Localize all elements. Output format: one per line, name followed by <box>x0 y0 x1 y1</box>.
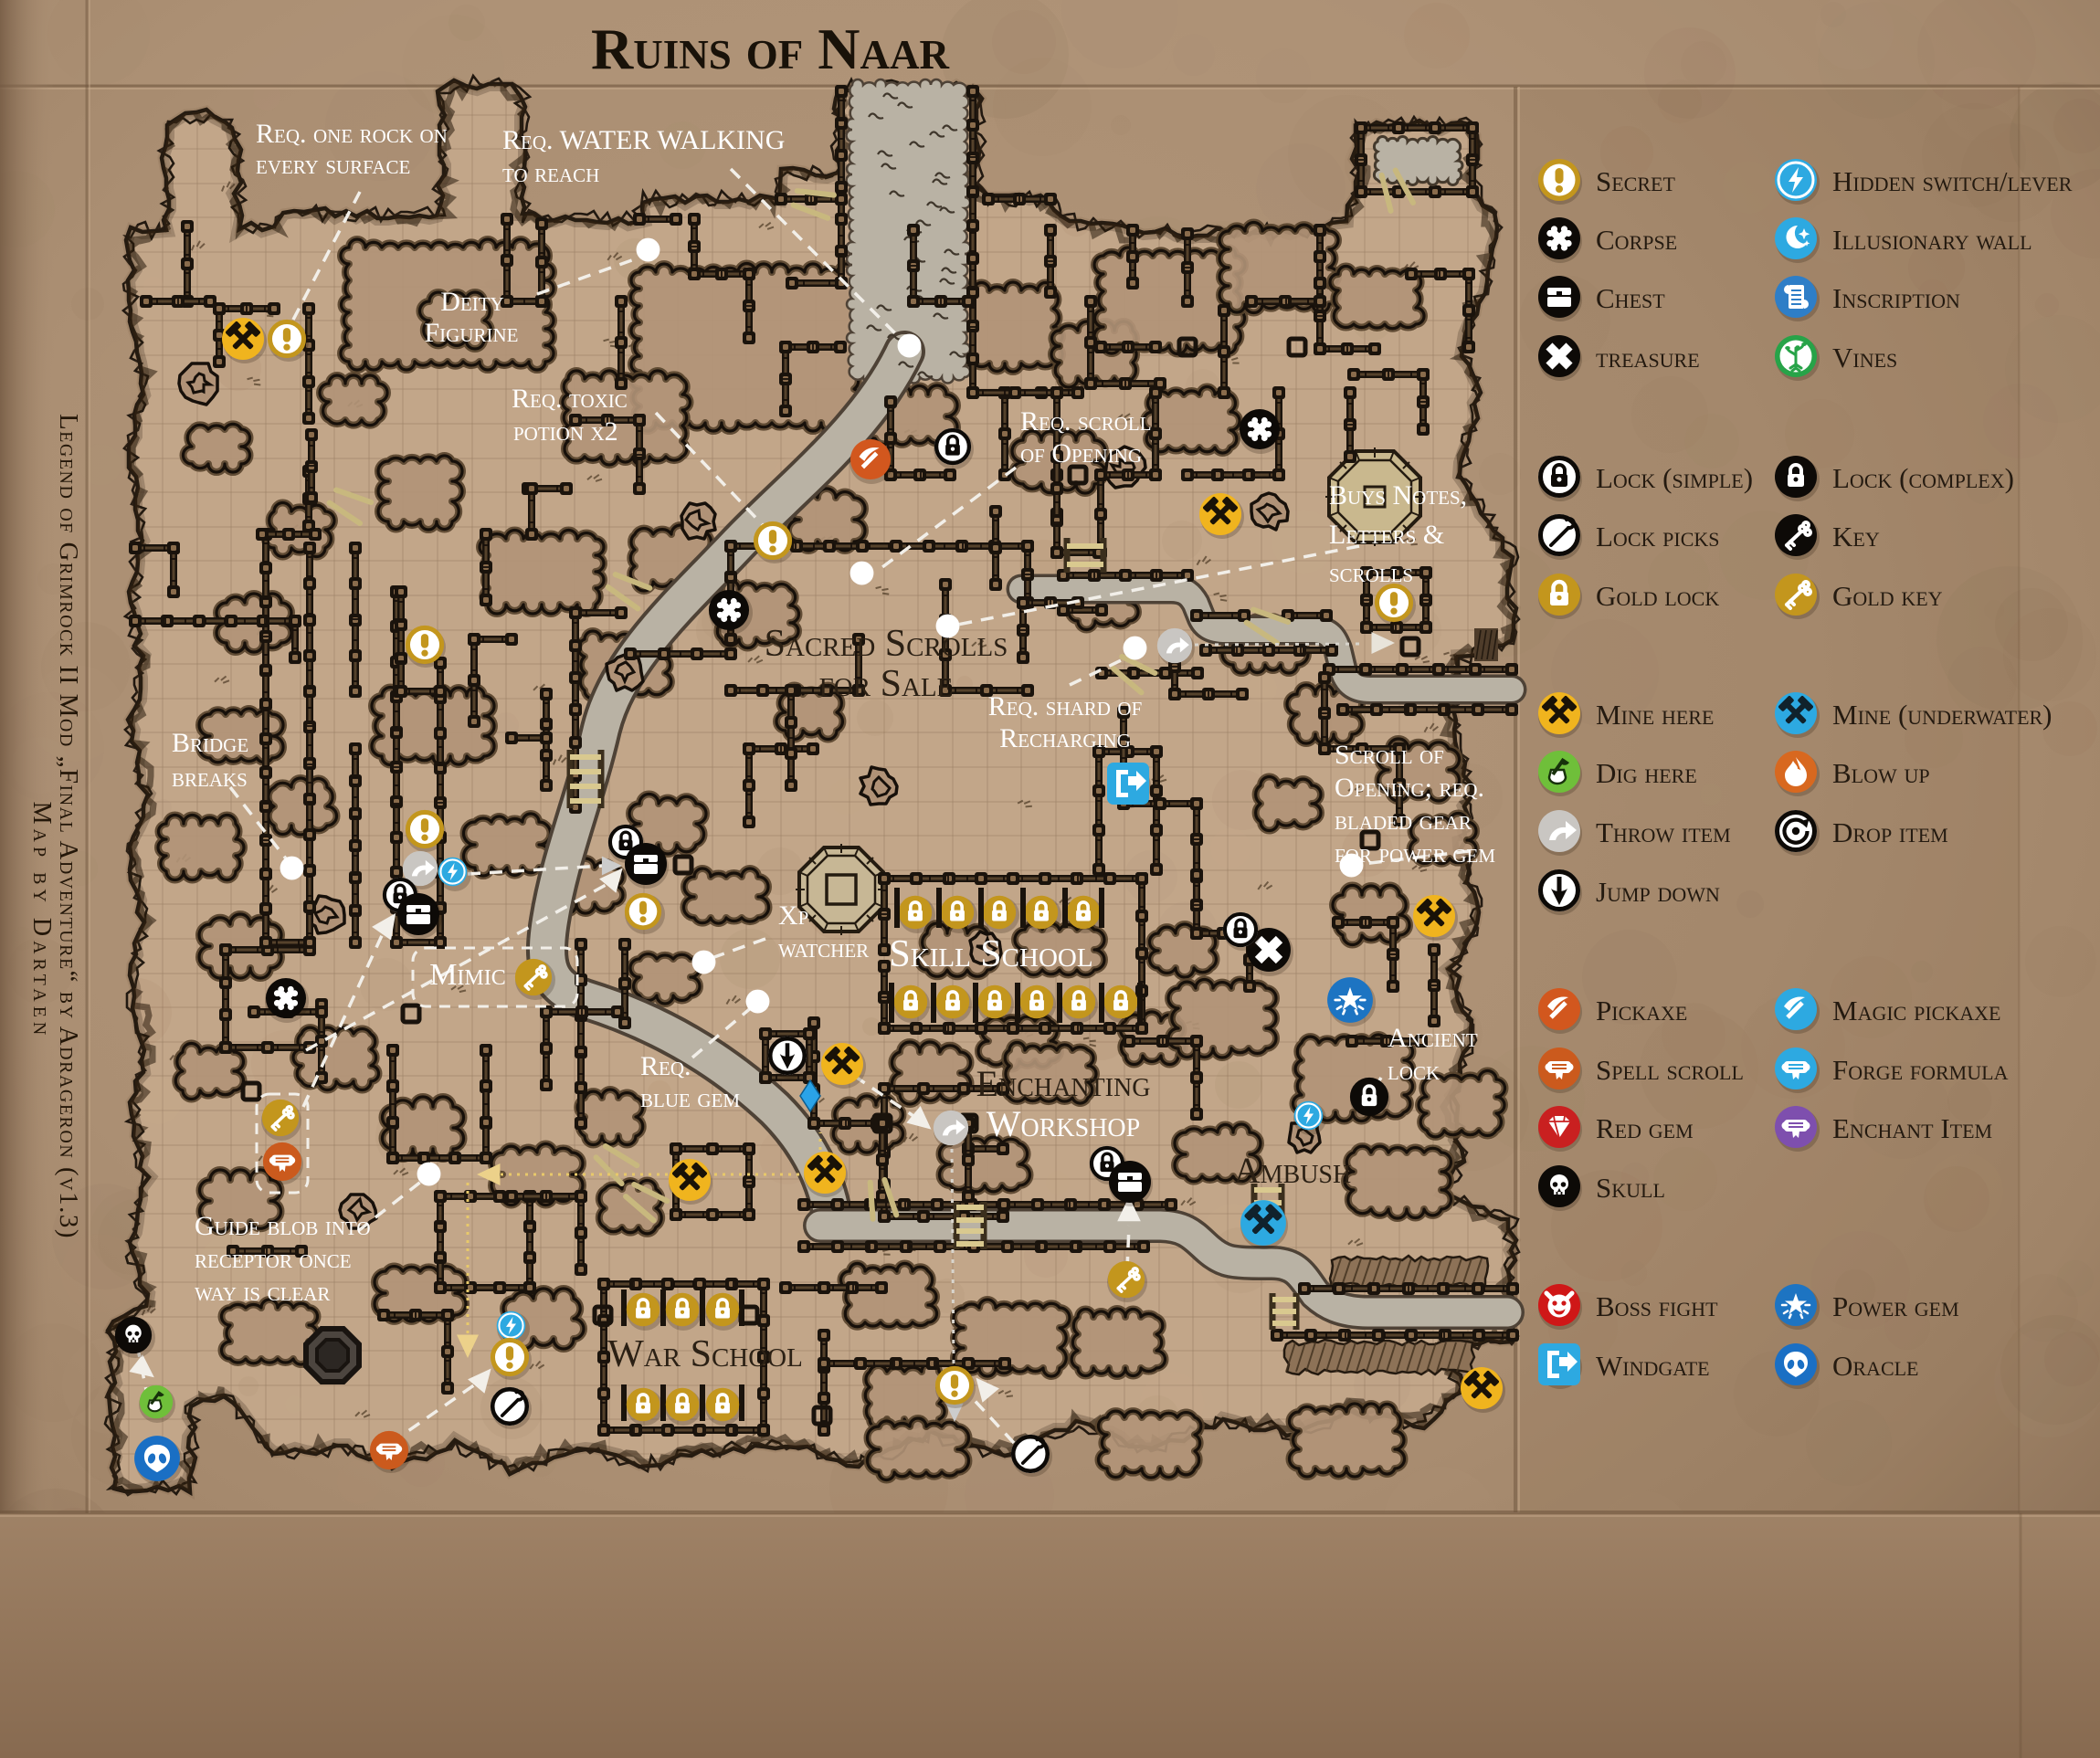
svg-text:breaks: breaks <box>172 763 248 793</box>
svg-text:Enchanting: Enchanting <box>976 1063 1151 1104</box>
svg-text:Drop item: Drop item <box>1832 816 1948 848</box>
svg-text:Skill School: Skill School <box>889 933 1092 975</box>
svg-text:Lock (simple): Lock (simple) <box>1596 462 1753 494</box>
svg-text:Power gem: Power gem <box>1832 1290 1959 1322</box>
svg-text:Req. one rock on: Req. one rock on <box>256 119 448 149</box>
svg-text:Hidden switch/lever: Hidden switch/lever <box>1832 165 2073 197</box>
svg-text:Lock picks: Lock picks <box>1596 521 1720 553</box>
svg-text:Windgate: Windgate <box>1596 1350 1710 1382</box>
svg-text:Lock (complex): Lock (complex) <box>1832 462 2014 494</box>
svg-text:bladed gear: bladed gear <box>1335 805 1472 836</box>
svg-text:Gold lock: Gold lock <box>1596 580 1719 612</box>
svg-text:receptor once: receptor once <box>195 1244 352 1274</box>
svg-text:Req. scroll: Req. scroll <box>1020 406 1152 437</box>
svg-text:Inscription: Inscription <box>1832 282 1960 314</box>
svg-text:Pickaxe: Pickaxe <box>1596 995 1687 1026</box>
svg-text:Guide blob into: Guide blob into <box>195 1211 371 1241</box>
svg-text:for Sale: for Sale <box>819 663 954 705</box>
svg-text:Spell scroll: Spell scroll <box>1596 1054 1744 1086</box>
svg-text:Ancient: Ancient <box>1388 1023 1478 1053</box>
svg-text:Figurine: Figurine <box>424 318 518 348</box>
svg-text:Secret: Secret <box>1596 165 1675 197</box>
svg-text:Chest: Chest <box>1596 282 1665 314</box>
svg-text:Req. WATER WALKING: Req. WATER WALKING <box>502 125 785 155</box>
svg-text:Opening; req.: Opening; req. <box>1335 773 1484 803</box>
svg-text:blue gem: blue gem <box>640 1083 740 1113</box>
svg-text:Dig here: Dig here <box>1596 757 1697 789</box>
svg-text:way is clear: way is clear <box>195 1277 330 1307</box>
svg-text:Vines: Vines <box>1832 342 1897 374</box>
svg-text:watcher: watcher <box>778 933 869 963</box>
svg-text:every surface: every surface <box>256 150 410 180</box>
svg-text:Recharging: Recharging <box>999 723 1131 753</box>
svg-text:Req. toxic: Req. toxic <box>512 384 628 414</box>
svg-text:War School: War School <box>607 1333 803 1375</box>
svg-text:Red gem: Red gem <box>1596 1112 1694 1144</box>
svg-text:Corpse: Corpse <box>1596 224 1677 256</box>
svg-text:treasure: treasure <box>1596 342 1700 374</box>
svg-text:Oracle: Oracle <box>1832 1350 1919 1382</box>
svg-text:Mimic: Mimic <box>429 958 506 992</box>
svg-text:lock: lock <box>1388 1056 1440 1086</box>
svg-text:Magic pickaxe: Magic pickaxe <box>1832 995 2000 1026</box>
svg-text:scrolls: scrolls <box>1329 558 1413 588</box>
svg-text:Boss fight: Boss fight <box>1596 1290 1718 1322</box>
svg-text:Bridge: Bridge <box>172 728 248 758</box>
svg-text:Xp: Xp <box>778 900 808 931</box>
svg-text:Skull: Skull <box>1596 1172 1665 1204</box>
svg-text:Throw item: Throw item <box>1596 816 1731 848</box>
svg-text:Jump down: Jump down <box>1596 876 1720 908</box>
svg-text:Sacred Scrolls: Sacred Scrolls <box>765 623 1008 665</box>
svg-text:Forge formula: Forge formula <box>1832 1054 2009 1086</box>
svg-text:Deity: Deity <box>440 287 503 317</box>
svg-text:Scroll of: Scroll of <box>1335 740 1444 770</box>
svg-text:Gold key: Gold key <box>1832 580 1943 612</box>
svg-text:Illusionary wall: Illusionary wall <box>1832 224 2032 256</box>
svg-text:Blow up: Blow up <box>1832 757 1930 789</box>
svg-text:Workshop: Workshop <box>987 1103 1140 1144</box>
svg-text:Req.: Req. <box>640 1051 691 1081</box>
svg-text:to reach: to reach <box>502 158 599 188</box>
svg-text:Ruins of Naar: Ruins of Naar <box>591 16 949 81</box>
svg-text:Ambush: Ambush <box>1234 1150 1351 1191</box>
svg-text:Key: Key <box>1832 521 1880 553</box>
svg-text:Map by Dartaen: Map by Dartaen <box>27 802 56 1040</box>
svg-text:Legend of Grimrock II Mod „Fin: Legend of Grimrock II Mod „Final Adventu… <box>54 414 83 1239</box>
svg-text:Letters &: Letters & <box>1329 520 1444 550</box>
svg-text:potion x2: potion x2 <box>513 416 618 447</box>
svg-text:of Opening: of Opening <box>1020 438 1142 468</box>
svg-text:Mine here: Mine here <box>1596 699 1714 731</box>
svg-text:Mine (underwater): Mine (underwater) <box>1832 699 2053 731</box>
svg-text:for power gem: for power gem <box>1335 838 1495 868</box>
svg-text:Req. shard of: Req. shard of <box>988 691 1143 721</box>
svg-text:Enchant Item: Enchant Item <box>1832 1112 1992 1144</box>
svg-text:Buys Notes,: Buys Notes, <box>1329 480 1467 511</box>
